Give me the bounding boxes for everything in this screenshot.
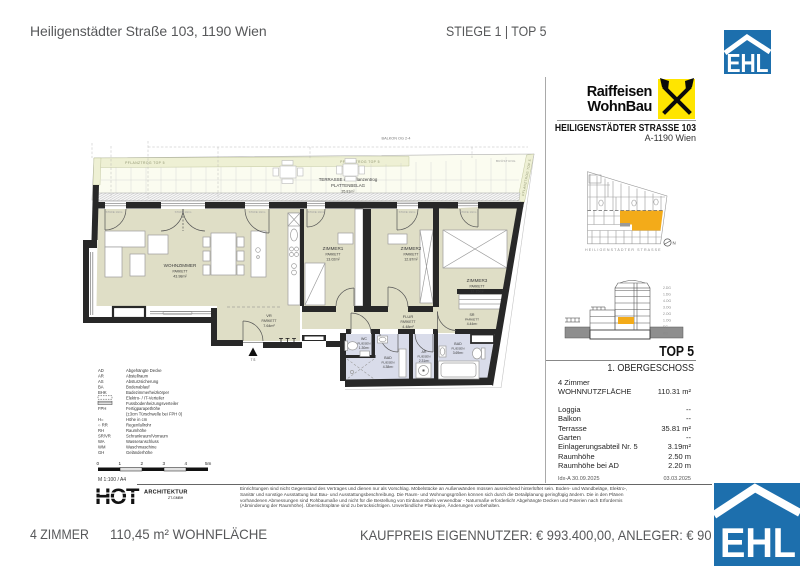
svg-text:STUFE 10cm: STUFE 10cm bbox=[460, 210, 477, 214]
svg-text:PARKETT: PARKETT bbox=[173, 270, 188, 274]
svg-text:H=: H= bbox=[98, 417, 104, 422]
svg-text:4.48m²: 4.48m² bbox=[402, 325, 414, 329]
svg-text:PLATTENBELAG: PLATTENBELAG bbox=[331, 183, 366, 188]
svg-text:AR: AR bbox=[98, 374, 104, 379]
svg-text:WM: WM bbox=[98, 444, 106, 449]
svg-text:STUFE 10cm: STUFE 10cm bbox=[308, 210, 325, 214]
svg-text:STUFE 10cm: STUFE 10cm bbox=[106, 210, 123, 214]
svg-text:PARKETT: PARKETT bbox=[470, 285, 485, 289]
svg-text:43.98m²: 43.98m² bbox=[173, 275, 187, 279]
svg-text:AS: AS bbox=[98, 379, 104, 384]
svg-text:Geländerhöhe: Geländerhöhe bbox=[126, 450, 153, 455]
svg-text:Absturzsicherung: Absturzsicherung bbox=[126, 379, 159, 384]
svg-text:7.64m²: 7.64m² bbox=[263, 324, 275, 328]
svg-text:FLUR: FLUR bbox=[403, 314, 414, 319]
svg-text:Wasseranschluss: Wasseranschluss bbox=[126, 439, 159, 444]
svg-text:Höhe in cm: Höhe in cm bbox=[126, 417, 148, 422]
svg-text:GH: GH bbox=[98, 450, 104, 455]
svg-text:FLIESEN: FLIESEN bbox=[382, 361, 395, 365]
svg-text:(±3cm Türschwelle bei FPH 0): (±3cm Türschwelle bei FPH 0) bbox=[126, 412, 183, 417]
svg-text:BA: BA bbox=[98, 384, 104, 389]
svg-text:AR: AR bbox=[422, 350, 427, 354]
svg-text:ZIMMER2: ZIMMER2 bbox=[401, 246, 422, 251]
svg-text:1: 1 bbox=[119, 461, 122, 466]
svg-text:3.69m²: 3.69m² bbox=[453, 351, 464, 355]
svg-text:WC: WC bbox=[361, 337, 367, 341]
svg-text:PARKETT: PARKETT bbox=[262, 319, 277, 323]
svg-text:ZIMMER3: ZIMMER3 bbox=[467, 278, 488, 283]
svg-text:Fertigparapethöhe: Fertigparapethöhe bbox=[126, 406, 161, 411]
svg-text:PARKETT: PARKETT bbox=[326, 253, 341, 257]
svg-text:Schrankraum/Vorraum: Schrankraum/Vorraum bbox=[126, 434, 168, 439]
svg-text:VR: VR bbox=[266, 313, 272, 318]
svg-text:5m: 5m bbox=[205, 461, 212, 466]
svg-text:M 1:100 / A4: M 1:100 / A4 bbox=[98, 477, 126, 483]
svg-text:Fussbodenheizungsverteiler: Fussbodenheizungsverteiler bbox=[126, 401, 179, 406]
svg-text:3: 3 bbox=[163, 461, 166, 466]
svg-text:Raumhöhe: Raumhöhe bbox=[126, 428, 147, 433]
svg-text:2: 2 bbox=[141, 461, 144, 466]
svg-text:Bodenablauf: Bodenablauf bbox=[126, 384, 150, 389]
svg-text:WA: WA bbox=[98, 439, 105, 444]
svg-text:Abgehängte Decke: Abgehängte Decke bbox=[126, 368, 162, 373]
svg-text:ZIMMER1: ZIMMER1 bbox=[323, 246, 344, 251]
svg-text:BHK: BHK bbox=[98, 390, 107, 395]
svg-text:STUFE 10cm: STUFE 10cm bbox=[399, 210, 416, 214]
svg-text:SR: SR bbox=[470, 313, 475, 317]
svg-text:PARKETT: PARKETT bbox=[465, 318, 479, 322]
svg-text:AD: AD bbox=[98, 368, 104, 373]
svg-text:4.44m²: 4.44m² bbox=[467, 322, 478, 326]
svg-text:Regenfallrohr: Regenfallrohr bbox=[126, 423, 152, 428]
svg-text:PFLANZTROG TOP 5: PFLANZTROG TOP 5 bbox=[125, 161, 165, 165]
svg-text:BAD: BAD bbox=[384, 356, 392, 360]
svg-text:FLIESEN: FLIESEN bbox=[452, 347, 465, 351]
svg-text:PARKETT: PARKETT bbox=[404, 253, 419, 257]
svg-text:BAD: BAD bbox=[454, 342, 462, 346]
svg-text:1.30m²: 1.30m² bbox=[359, 346, 370, 350]
svg-text:Badezimmerheizkörper: Badezimmerheizkörper bbox=[126, 390, 170, 395]
svg-text:RH: RH bbox=[98, 428, 104, 433]
svg-text:FPH: FPH bbox=[98, 406, 106, 411]
svg-text:STUFE 10cm: STUFE 10cm bbox=[175, 210, 192, 214]
svg-text:PARKETT: PARKETT bbox=[401, 320, 416, 324]
svg-text:Waschmaschine: Waschmaschine bbox=[126, 444, 157, 449]
svg-text:○ RR: ○ RR bbox=[98, 423, 108, 428]
svg-text:7 S: 7 S bbox=[251, 358, 256, 362]
svg-text:Abstellraum: Abstellraum bbox=[126, 374, 149, 379]
svg-text:FLIESEN: FLIESEN bbox=[358, 342, 371, 346]
svg-text:0: 0 bbox=[97, 461, 100, 466]
svg-text:Elektro- / IT-Verteiler: Elektro- / IT-Verteiler bbox=[126, 395, 165, 400]
svg-text:2.31m²: 2.31m² bbox=[419, 359, 430, 363]
svg-text:4: 4 bbox=[185, 461, 188, 466]
svg-text:12.87m²: 12.87m² bbox=[404, 258, 418, 262]
svg-text:13.02m²: 13.02m² bbox=[326, 258, 340, 262]
svg-text:WOHNZIMMER: WOHNZIMMER bbox=[164, 263, 197, 268]
svg-text:12.15m²: 12.15m² bbox=[470, 290, 484, 294]
svg-text:BALKON OG 2-4: BALKON OG 2-4 bbox=[382, 137, 411, 141]
svg-text:STUFE 10cm: STUFE 10cm bbox=[249, 210, 266, 214]
svg-text:4.38m²: 4.38m² bbox=[383, 365, 394, 369]
svg-text:FLIESEN: FLIESEN bbox=[418, 355, 431, 359]
svg-text:SR/VR: SR/VR bbox=[98, 434, 111, 439]
